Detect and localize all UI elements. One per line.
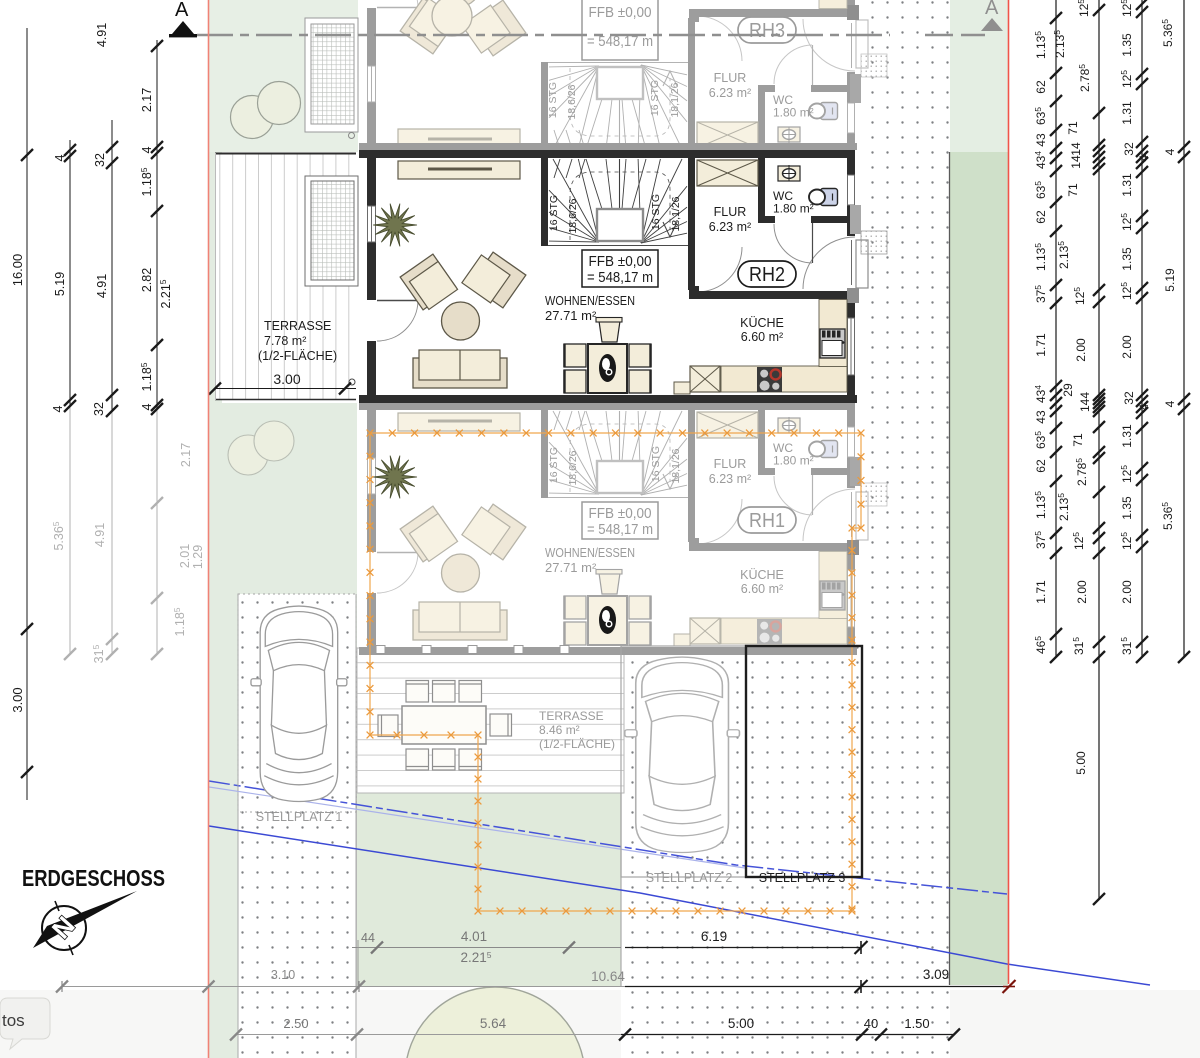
svg-text:FFB ±0,00: FFB ±0,00 xyxy=(589,506,652,522)
svg-text:4.91: 4.91 xyxy=(95,23,109,47)
svg-text:16 STG: 16 STG xyxy=(548,447,560,483)
svg-text:14: 14 xyxy=(1069,142,1083,156)
svg-text:1.29: 1.29 xyxy=(191,545,205,569)
svg-text:1.71: 1.71 xyxy=(1034,580,1048,604)
svg-text:RH2: RH2 xyxy=(749,264,785,286)
svg-text:4: 4 xyxy=(140,146,154,153)
svg-text:7.78 m²: 7.78 m² xyxy=(264,334,306,348)
svg-text:16.00: 16.00 xyxy=(10,254,25,287)
svg-text:16 STG: 16 STG xyxy=(548,195,560,231)
svg-text:43: 43 xyxy=(1034,133,1048,147)
svg-text:3.00: 3.00 xyxy=(273,371,300,387)
svg-text:27.71 m²: 27.71 m² xyxy=(545,560,597,575)
svg-text:= 548,17 m: = 548,17 m xyxy=(587,522,653,538)
svg-text:4: 4 xyxy=(1137,154,1151,161)
svg-text:4: 4 xyxy=(53,154,67,161)
svg-text:1.71: 1.71 xyxy=(1034,333,1048,357)
svg-text:5.64: 5.64 xyxy=(480,1016,507,1031)
svg-text:27.71 m²: 27.71 m² xyxy=(545,308,597,323)
svg-text:18,6/26: 18,6/26 xyxy=(566,84,578,119)
svg-text:4: 4 xyxy=(51,405,65,412)
svg-text:62: 62 xyxy=(1034,459,1048,473)
svg-text:4.01: 4.01 xyxy=(461,929,487,944)
svg-text:32: 32 xyxy=(1122,391,1136,405)
svg-text:1.80 m²: 1.80 m² xyxy=(773,106,814,120)
svg-text:STELLPLATZ 1: STELLPLATZ 1 xyxy=(256,810,343,824)
svg-text:18,1/26: 18,1/26 xyxy=(670,196,682,231)
svg-text:= 548,17 m: = 548,17 m xyxy=(587,34,653,50)
svg-text:ERDGESCHOSS: ERDGESCHOSS xyxy=(22,865,165,891)
svg-text:tos: tos xyxy=(2,1011,25,1030)
svg-text:6.23 m²: 6.23 m² xyxy=(709,220,751,234)
svg-text:29: 29 xyxy=(1061,383,1075,397)
svg-text:4: 4 xyxy=(1163,400,1177,407)
svg-text:TERRASSE: TERRASSE xyxy=(264,319,331,333)
svg-text:1.31: 1.31 xyxy=(1120,173,1134,197)
svg-text:A: A xyxy=(175,0,189,21)
svg-text:6.23 m²: 6.23 m² xyxy=(709,472,751,486)
svg-text:4: 4 xyxy=(1163,148,1177,155)
svg-text:2.00: 2.00 xyxy=(1074,338,1088,362)
svg-text:16 STG: 16 STG xyxy=(650,446,662,482)
svg-text:43: 43 xyxy=(1034,410,1048,424)
svg-text:FLUR: FLUR xyxy=(714,205,747,219)
svg-text:2.01: 2.01 xyxy=(178,544,192,568)
svg-text:5.19: 5.19 xyxy=(1163,268,1177,292)
svg-text:1.31: 1.31 xyxy=(1120,424,1134,448)
svg-text:6.19: 6.19 xyxy=(701,929,727,944)
svg-text:3.09: 3.09 xyxy=(923,967,949,982)
svg-text:A: A xyxy=(985,0,999,19)
svg-text:= 548,17 m: = 548,17 m xyxy=(587,270,653,286)
svg-text:8.46 m²: 8.46 m² xyxy=(539,723,580,737)
svg-text:3.10: 3.10 xyxy=(271,968,295,982)
svg-text:2.00: 2.00 xyxy=(1075,580,1089,604)
svg-text:1.31: 1.31 xyxy=(1120,101,1134,125)
svg-text:2.17: 2.17 xyxy=(179,443,193,467)
svg-text:144: 144 xyxy=(1078,392,1092,412)
svg-text:4: 4 xyxy=(1137,403,1151,410)
svg-text:16 STG: 16 STG xyxy=(650,194,662,230)
svg-text:1.80 m²: 1.80 m² xyxy=(773,202,814,216)
svg-text:32: 32 xyxy=(93,153,107,167)
svg-text:32: 32 xyxy=(92,402,106,416)
svg-text:TERRASSE: TERRASSE xyxy=(539,709,604,723)
svg-text:71: 71 xyxy=(1066,183,1080,197)
svg-text:4: 4 xyxy=(140,403,154,410)
svg-text:18,6/26: 18,6/26 xyxy=(567,450,579,485)
svg-text:1.50: 1.50 xyxy=(904,1016,929,1031)
svg-text:2.50: 2.50 xyxy=(283,1016,308,1031)
svg-text:16 STG: 16 STG xyxy=(649,80,661,116)
svg-text:6.60 m²: 6.60 m² xyxy=(741,330,783,344)
svg-text:FFB ±0,00: FFB ±0,00 xyxy=(589,5,652,21)
svg-text:5.00: 5.00 xyxy=(1074,751,1088,775)
svg-text:16 STG: 16 STG xyxy=(547,82,559,118)
svg-text:44: 44 xyxy=(361,931,375,945)
svg-text:(1/2-FLÄCHE): (1/2-FLÄCHE) xyxy=(258,349,337,363)
svg-text:10.64: 10.64 xyxy=(591,969,625,984)
svg-text:1.80 m²: 1.80 m² xyxy=(773,454,814,468)
svg-text:(1/2-FLÄCHE): (1/2-FLÄCHE) xyxy=(539,737,615,751)
svg-text:18,1/26: 18,1/26 xyxy=(670,448,682,483)
svg-text:40: 40 xyxy=(864,1016,878,1031)
svg-text:5.19: 5.19 xyxy=(53,272,67,296)
svg-text:6.60 m²: 6.60 m² xyxy=(741,582,783,596)
svg-text:5.00: 5.00 xyxy=(728,1016,754,1031)
svg-text:71: 71 xyxy=(1066,121,1080,135)
svg-text:6.23 m²: 6.23 m² xyxy=(709,86,751,100)
svg-text:WOHNEN/ESSEN: WOHNEN/ESSEN xyxy=(545,545,635,560)
svg-text:2.17: 2.17 xyxy=(140,88,154,112)
svg-text:KÜCHE: KÜCHE xyxy=(740,316,784,330)
svg-text:62: 62 xyxy=(1034,80,1048,94)
svg-text:62: 62 xyxy=(1034,210,1048,224)
svg-text:4.91: 4.91 xyxy=(93,523,107,547)
svg-text:RH3: RH3 xyxy=(749,20,785,42)
svg-text:14: 14 xyxy=(1069,155,1083,169)
svg-text:1.35: 1.35 xyxy=(1120,33,1134,57)
svg-text:RH1: RH1 xyxy=(749,510,785,532)
svg-text:STELLPLATZ 3: STELLPLATZ 3 xyxy=(759,871,846,885)
svg-text:STELLPLATZ 2: STELLPLATZ 2 xyxy=(646,871,733,885)
svg-text:32: 32 xyxy=(1122,142,1136,156)
svg-text:18,6/26: 18,6/26 xyxy=(567,198,579,233)
svg-text:FLUR: FLUR xyxy=(714,71,747,85)
svg-text:FFB ±0,00: FFB ±0,00 xyxy=(589,254,652,270)
svg-text:2.00: 2.00 xyxy=(1120,335,1134,359)
svg-text:KÜCHE: KÜCHE xyxy=(740,568,784,582)
svg-text:18,1/26: 18,1/26 xyxy=(669,82,681,117)
svg-text:2.00: 2.00 xyxy=(1120,580,1134,604)
svg-text:4.91: 4.91 xyxy=(95,274,109,298)
svg-text:1.35: 1.35 xyxy=(1120,496,1134,520)
svg-text:71: 71 xyxy=(1071,433,1085,447)
svg-text:WOHNEN/ESSEN: WOHNEN/ESSEN xyxy=(545,293,635,308)
svg-text:3.00: 3.00 xyxy=(10,687,25,712)
svg-text:1.35: 1.35 xyxy=(1120,247,1134,271)
svg-text:FLUR: FLUR xyxy=(714,457,747,471)
svg-text:2.82: 2.82 xyxy=(140,268,154,292)
